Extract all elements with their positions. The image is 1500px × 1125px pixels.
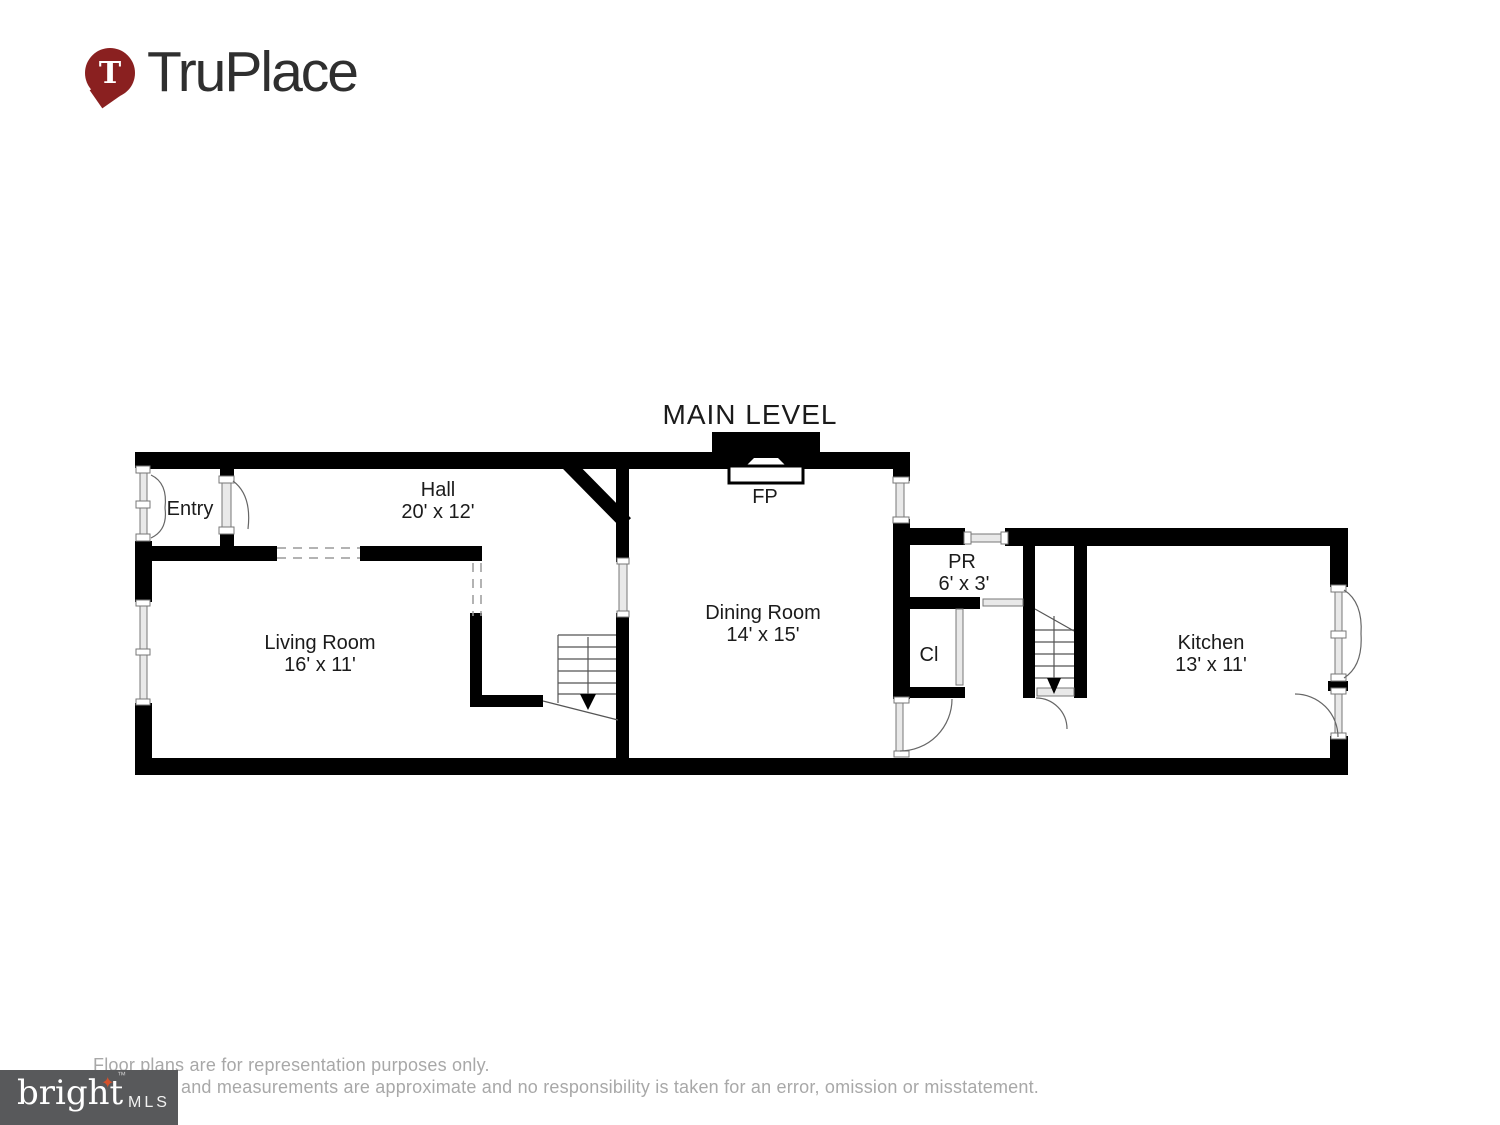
- wall-living-right: [470, 613, 482, 707]
- plan-title: MAIN LEVEL: [663, 399, 838, 430]
- room-dims-living: 16' x 11': [284, 654, 356, 676]
- stairs-hall: [543, 635, 618, 720]
- hearth: [729, 466, 803, 483]
- room-dims-kitchen: 13' x 11': [1175, 654, 1247, 676]
- room-label-closet: Cl: [920, 644, 939, 666]
- stairs-kitchen: [1035, 609, 1074, 680]
- wall-kitchen-right-bottom: [1330, 736, 1348, 775]
- bright-mls-logo: bright ✦ ™ MLS: [0, 1070, 178, 1125]
- kitchen-french-arc-bottom: [1344, 634, 1361, 678]
- wall-left-mid: [135, 541, 152, 602]
- room-dims-hall: 20' x 12': [401, 501, 474, 523]
- dining-right-window: [896, 481, 904, 519]
- room-label-fireplace: FP: [752, 486, 778, 508]
- bright-mls-trademark: ™: [117, 1070, 126, 1080]
- room-label-kitchen: Kitchen: [1178, 632, 1245, 654]
- wall-kitchen-top: [1005, 528, 1348, 546]
- hall-dining-window: [619, 562, 627, 613]
- dining-se-door: [896, 701, 903, 752]
- wall-hall-living-right: [360, 546, 482, 561]
- kitchen-french-arc-top: [1344, 590, 1361, 634]
- entry-hall-door: [222, 482, 231, 528]
- wall-kitchen-right-top: [1330, 528, 1348, 587]
- entry-french-arc-bottom: [151, 508, 165, 538]
- room-label-entry: Entry: [167, 498, 214, 520]
- wall-left-bottom: [135, 703, 152, 775]
- wall-bottom: [137, 758, 1348, 775]
- disclaimer-line2: and measurements are approximate and no …: [181, 1077, 1039, 1098]
- stair2-door-arc: [1036, 698, 1067, 729]
- kitchen-lower-door-arc: [1295, 694, 1338, 737]
- stairs-hall-down-arrow: [580, 694, 596, 710]
- room-label-living: Living Room: [264, 632, 375, 654]
- wall-dining-left-lower: [616, 613, 629, 758]
- room-label-dining: Dining Room: [705, 602, 821, 624]
- room-dims-pr: 6' x 3': [939, 573, 990, 595]
- wall-stair-stub: [470, 695, 543, 707]
- wall-entry-partition-upper: [220, 452, 234, 478]
- pr-pocket-door-bottom: [983, 599, 1023, 606]
- room-label-hall: Hall: [421, 479, 455, 501]
- dining-se-door-arc: [900, 699, 952, 751]
- entry-hall-door-arc: [233, 481, 249, 529]
- pr-pocket-door-top: [970, 534, 1002, 542]
- wall-closet-bottom: [893, 687, 965, 698]
- kitchen-lower-door-glass: [1335, 692, 1342, 735]
- wall-pr-bottom: [893, 597, 980, 609]
- entry-french-arc-top: [151, 475, 165, 508]
- wall-stair2-left: [1023, 546, 1035, 698]
- closet-door: [956, 609, 963, 685]
- wall-pr-top: [893, 528, 965, 545]
- room-dims-dining: 14' x 15': [726, 624, 799, 646]
- floorplan-page: T TruPlace MAIN LEVEL: [0, 0, 1500, 1125]
- wall-hall-living-left: [137, 546, 277, 561]
- floorplan-drawing: MAIN LEVEL: [0, 0, 1500, 1125]
- wall-stair2-right: [1074, 546, 1087, 698]
- bright-mls-star-icon: ✦: [101, 1073, 114, 1092]
- room-label-pr: PR: [948, 551, 976, 573]
- bright-mls-suffix: MLS: [128, 1094, 170, 1112]
